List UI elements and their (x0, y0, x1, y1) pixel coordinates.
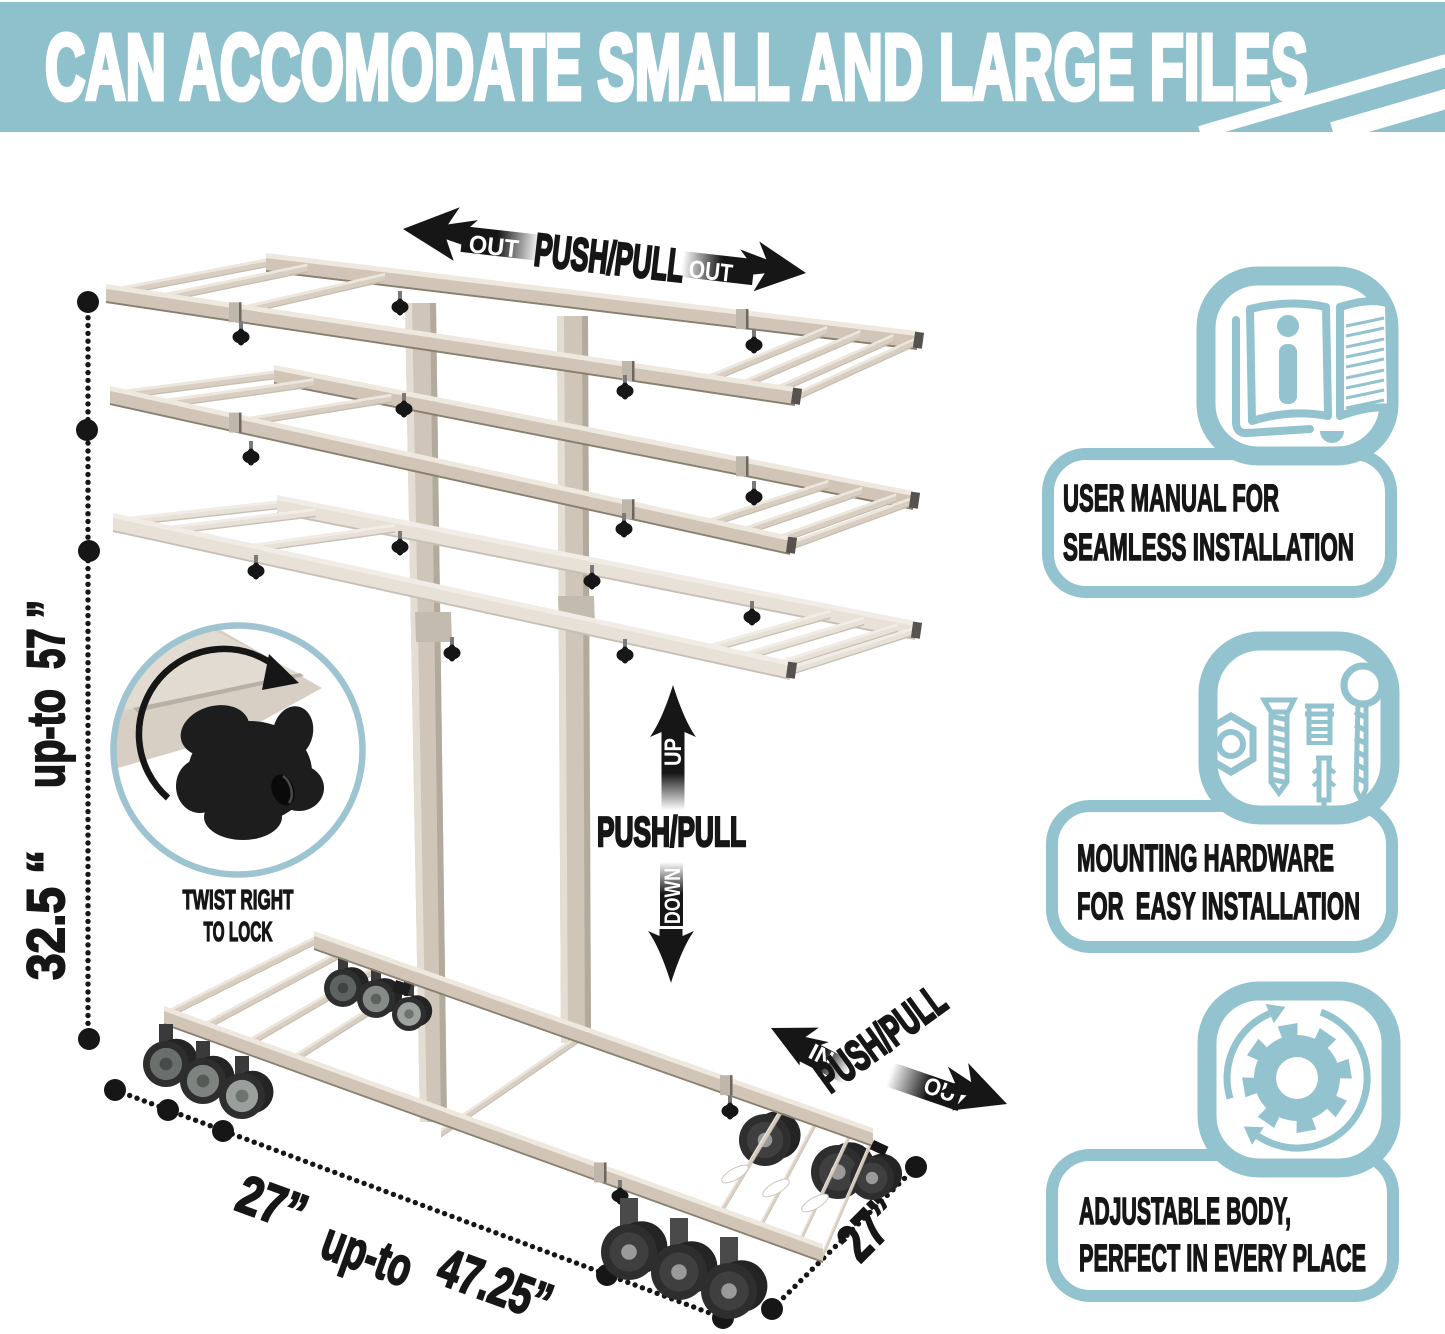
svg-text:up-to: up-to (17, 689, 76, 788)
svg-text:PUSH/PULL: PUSH/PULL (597, 808, 746, 855)
svg-text:ADJUSTABLE BODY,: ADJUSTABLE BODY, (1079, 1191, 1291, 1233)
svg-text:FOR EASY INSTALLATION: FOR EASY INSTALLATION (1077, 886, 1360, 928)
svg-text:TO LOCK: TO LOCK (204, 916, 273, 947)
svg-text:UP: UP (660, 738, 687, 766)
svg-text:MOUNTING HARDWARE: MOUNTING HARDWARE (1077, 838, 1334, 880)
svg-text:USER MANUAL FOR: USER MANUAL FOR (1063, 478, 1279, 520)
svg-text:CAN ACCOMODATE SMALL AND LARGE: CAN ACCOMODATE SMALL AND LARGE FILES (45, 15, 1308, 119)
svg-text:DOWN: DOWN (660, 868, 685, 924)
svg-text:OUT: OUT (687, 255, 734, 288)
svg-text:32.5 “: 32.5 “ (17, 850, 76, 980)
svg-text:57 ”: 57 ” (17, 600, 76, 669)
svg-text:PERFECT IN EVERY PLACE: PERFECT IN EVERY PLACE (1079, 1238, 1366, 1280)
svg-text:TWIST RIGHT: TWIST RIGHT (183, 884, 294, 915)
svg-text:SEAMLESS INSTALLATION: SEAMLESS INSTALLATION (1063, 527, 1354, 569)
svg-text:OUT: OUT (467, 230, 520, 263)
